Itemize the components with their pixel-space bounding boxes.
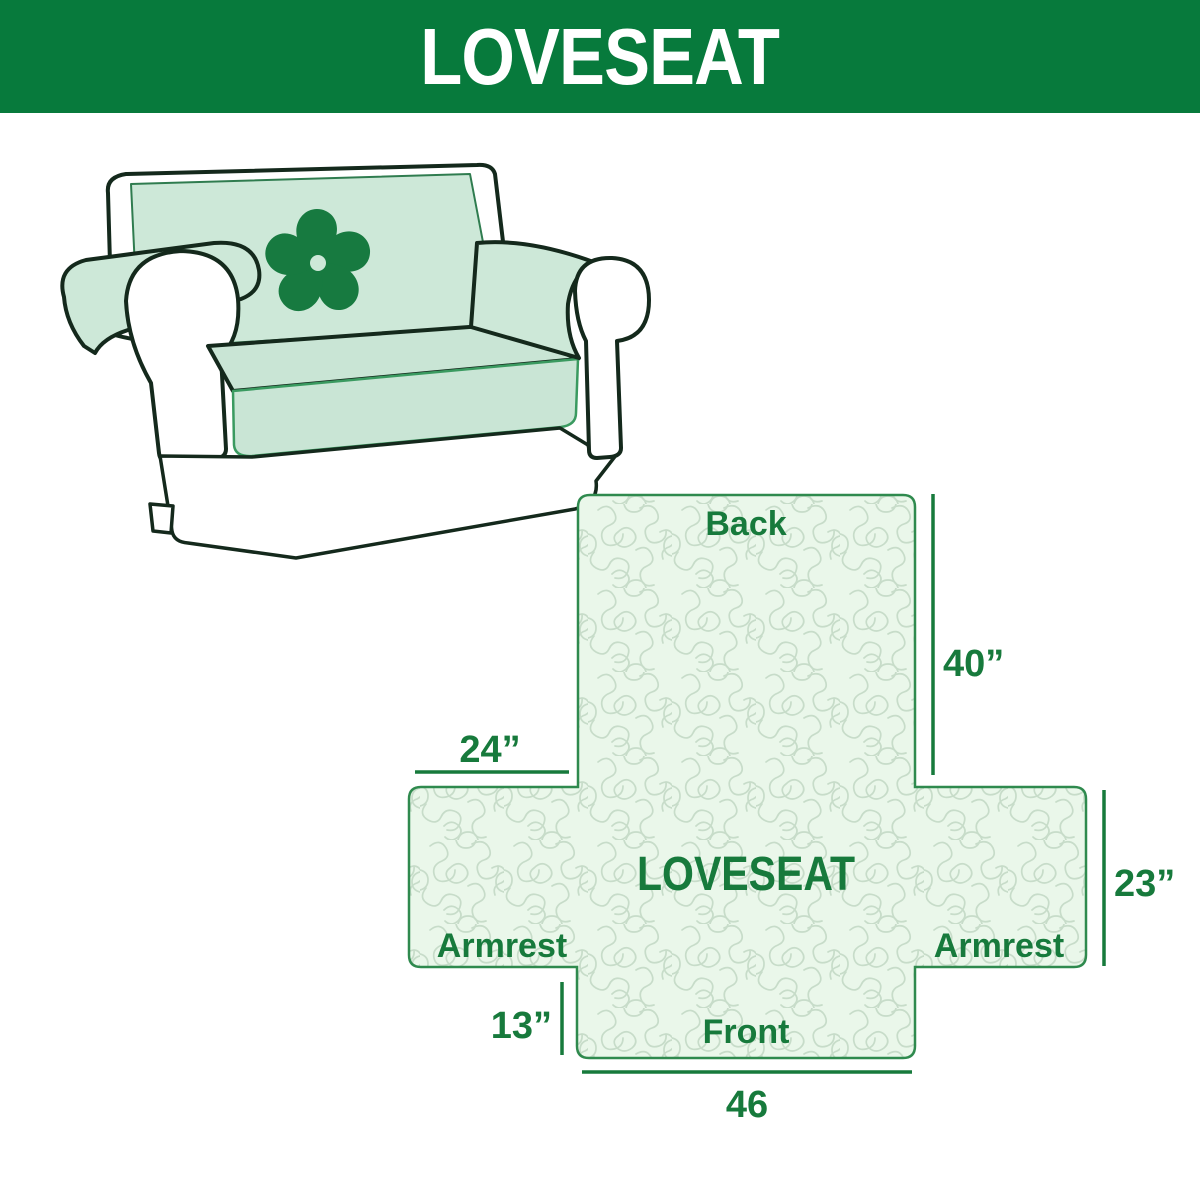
label-armrest-right: Armrest	[934, 927, 1064, 965]
product-infographic: LOVESEAT	[0, 0, 1200, 1200]
sofa-foot	[150, 504, 173, 533]
dim-front-width: 46	[726, 1084, 768, 1126]
dim-armrest-height: 23”	[1114, 863, 1175, 905]
loveseat-illustration	[62, 165, 649, 558]
cover-dimension-diagram: Back LOVESEAT Armrest Armrest Front 40” …	[409, 494, 1175, 1126]
label-front: Front	[703, 1013, 790, 1051]
dim-back-height: 40”	[943, 643, 1004, 685]
dim-armrest-width: 24”	[459, 729, 520, 771]
cover-cross-shape	[409, 495, 1086, 1058]
artwork-canvas: Back LOVESEAT Armrest Armrest Front 40” …	[0, 0, 1200, 1200]
label-back: Back	[705, 505, 786, 543]
dim-front-skirt-height: 13”	[491, 1005, 552, 1047]
sofa-right-arm-front	[575, 258, 649, 458]
label-center: LOVESEAT	[637, 848, 855, 901]
label-armrest-left: Armrest	[437, 927, 567, 965]
sofa-base	[160, 428, 620, 558]
